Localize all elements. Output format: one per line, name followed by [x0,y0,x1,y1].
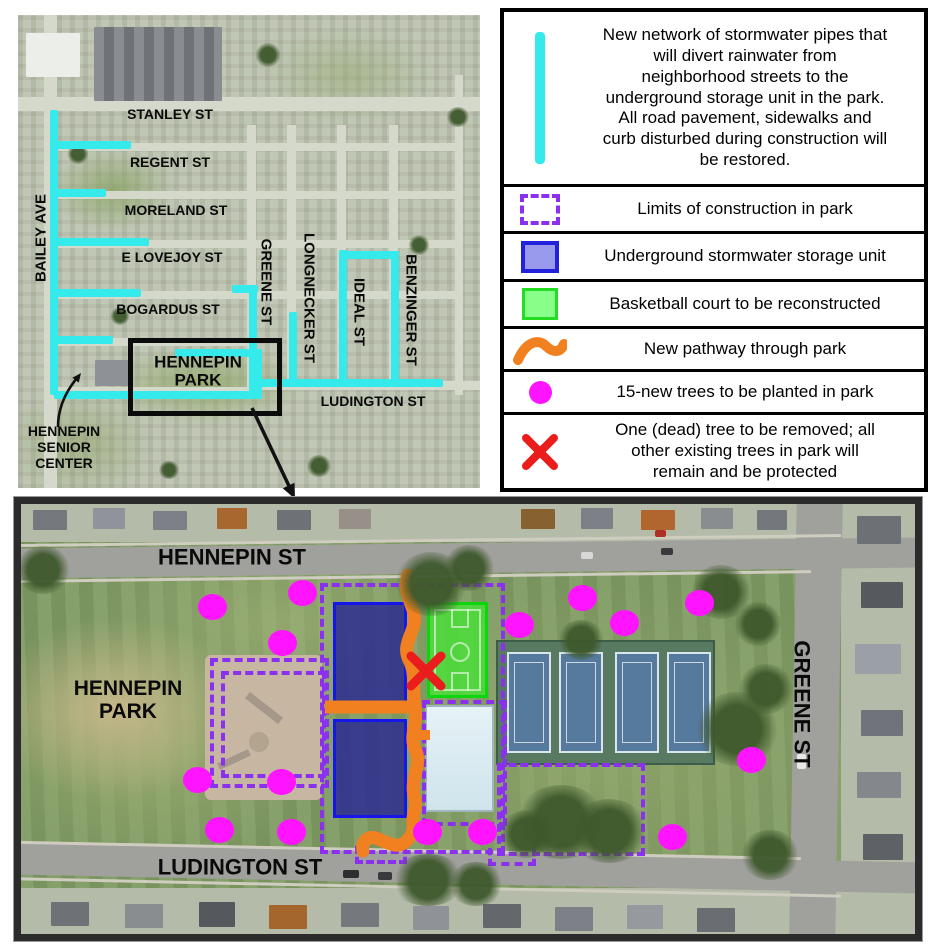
legend-row-storage: Underground stormwater storage unit [504,231,924,279]
new-tree-marker [685,590,714,616]
street-label-bogardus: BOGARDUS ST [116,302,219,318]
new-tree-marker [268,630,297,656]
new-tree-marker [183,767,212,793]
senior-center-label-line2: SENIOR [37,440,91,456]
tree [734,602,782,646]
pipe-ideal [339,250,347,387]
tree [158,461,180,479]
new-tree-marker [505,612,534,638]
basketball-court-symbol [522,288,558,320]
street-label-benzinger: BENZINGER ST [402,254,419,366]
street-label-longnecker: LONGNECKER ST [300,233,317,363]
project-map-page: STANLEY ST REGENT ST MORELAND ST E LOVEJ… [0,0,936,944]
legend-row-limits: Limits of construction in park [504,184,924,231]
street-label-ludington: LUDINGTON ST [321,394,426,410]
street-label-lovejoy: E LOVEJOY ST [122,250,223,266]
pipe-stanley [54,141,131,149]
new-tree-marker [277,819,306,845]
pipe-regent [54,189,106,197]
tree [15,546,71,594]
legend-row-pathway: New pathway through park [504,326,924,369]
tree [448,862,504,906]
legend-text: New network of stormwater pipes that wil… [602,25,888,170]
pipe-longnecker [289,312,297,387]
legend-text: 15-new trees to be planted in park [616,382,873,403]
car [378,872,392,880]
legend-text: Limits of construction in park [637,199,852,220]
tree-removal-symbol [521,432,559,472]
street-label-moreland: MORELAND ST [125,203,228,219]
legend-text: New pathway through park [644,339,846,360]
senior-center-arrow [48,365,98,435]
new-pathway-symbol [513,332,567,366]
pipe-benzinger [391,251,399,387]
legend-row-trees: 15-new trees to be planted in park [504,369,924,412]
legend-row-basketball: Basketball court to be reconstructed [504,279,924,326]
detail-park-label-line2: PARK [99,700,157,724]
street-label-stanley: STANLEY ST [127,107,213,123]
legend-text: One (dead) tree to be removed; all other… [611,420,879,482]
street-label-bailey: BAILEY AVE [34,194,51,282]
white-building [26,33,80,77]
car [661,548,673,555]
detail-street-label-greene: GREENE ST [789,640,814,767]
industrial-building [94,27,222,101]
construction-limits-symbol [520,194,560,225]
car [581,552,593,559]
new-tree-marker [737,747,766,773]
legend-text: Underground stormwater storage unit [604,246,886,267]
street-label-greene: GREENE ST [257,239,274,326]
detail-street-label-ludington: LUDINGTON ST [158,856,323,881]
new-tree-marker [413,819,442,845]
new-tree-marker [610,610,639,636]
new-tree-marker [267,769,296,795]
tree [557,620,605,660]
tree [738,664,794,714]
tree [570,799,648,863]
new-tree-marker [205,817,234,843]
street-label-regent: REGENT ST [130,155,210,171]
new-tree-marker [658,824,687,850]
pipe-bailey-trunk [50,110,58,395]
detail-street-label-hennepin: HENNEPIN ST [158,546,306,571]
pipe-lovejoy [54,289,141,297]
new-tree-marker [198,594,227,620]
legend: New network of stormwater pipes that wil… [500,8,928,492]
tree [443,545,495,591]
legend-row-removal: One (dead) tree to be removed; all other… [504,412,924,488]
stormwater-pipe-symbol [535,32,545,164]
road [18,97,480,111]
zoom-callout-arrow [238,402,318,510]
tree [408,235,430,255]
tree [255,43,281,67]
legend-text: Basketball court to be reconstructed [609,294,880,315]
pipe-bogardus [54,336,113,344]
car [343,870,359,878]
senior-center-label-line3: CENTER [35,456,93,472]
new-tree-symbol [529,381,552,404]
detail-park-label-line1: HENNEPIN [74,677,183,701]
car [655,530,666,537]
tree [446,107,470,127]
street-label-ideal: IDEAL ST [350,278,367,346]
detail-map: HENNEPIN ST LUDINGTON ST GREENE ST HENNE… [14,497,922,941]
new-tree-marker [568,585,597,611]
pipe-moreland [54,238,149,246]
tree [499,810,555,858]
new-tree-marker [288,580,317,606]
storage-unit-symbol [521,241,559,273]
new-tree-marker [468,819,497,845]
pipe-ideal-benzinger-link [339,251,399,259]
tree [740,830,800,880]
legend-row-pipes: New network of stormwater pipes that wil… [504,12,924,184]
